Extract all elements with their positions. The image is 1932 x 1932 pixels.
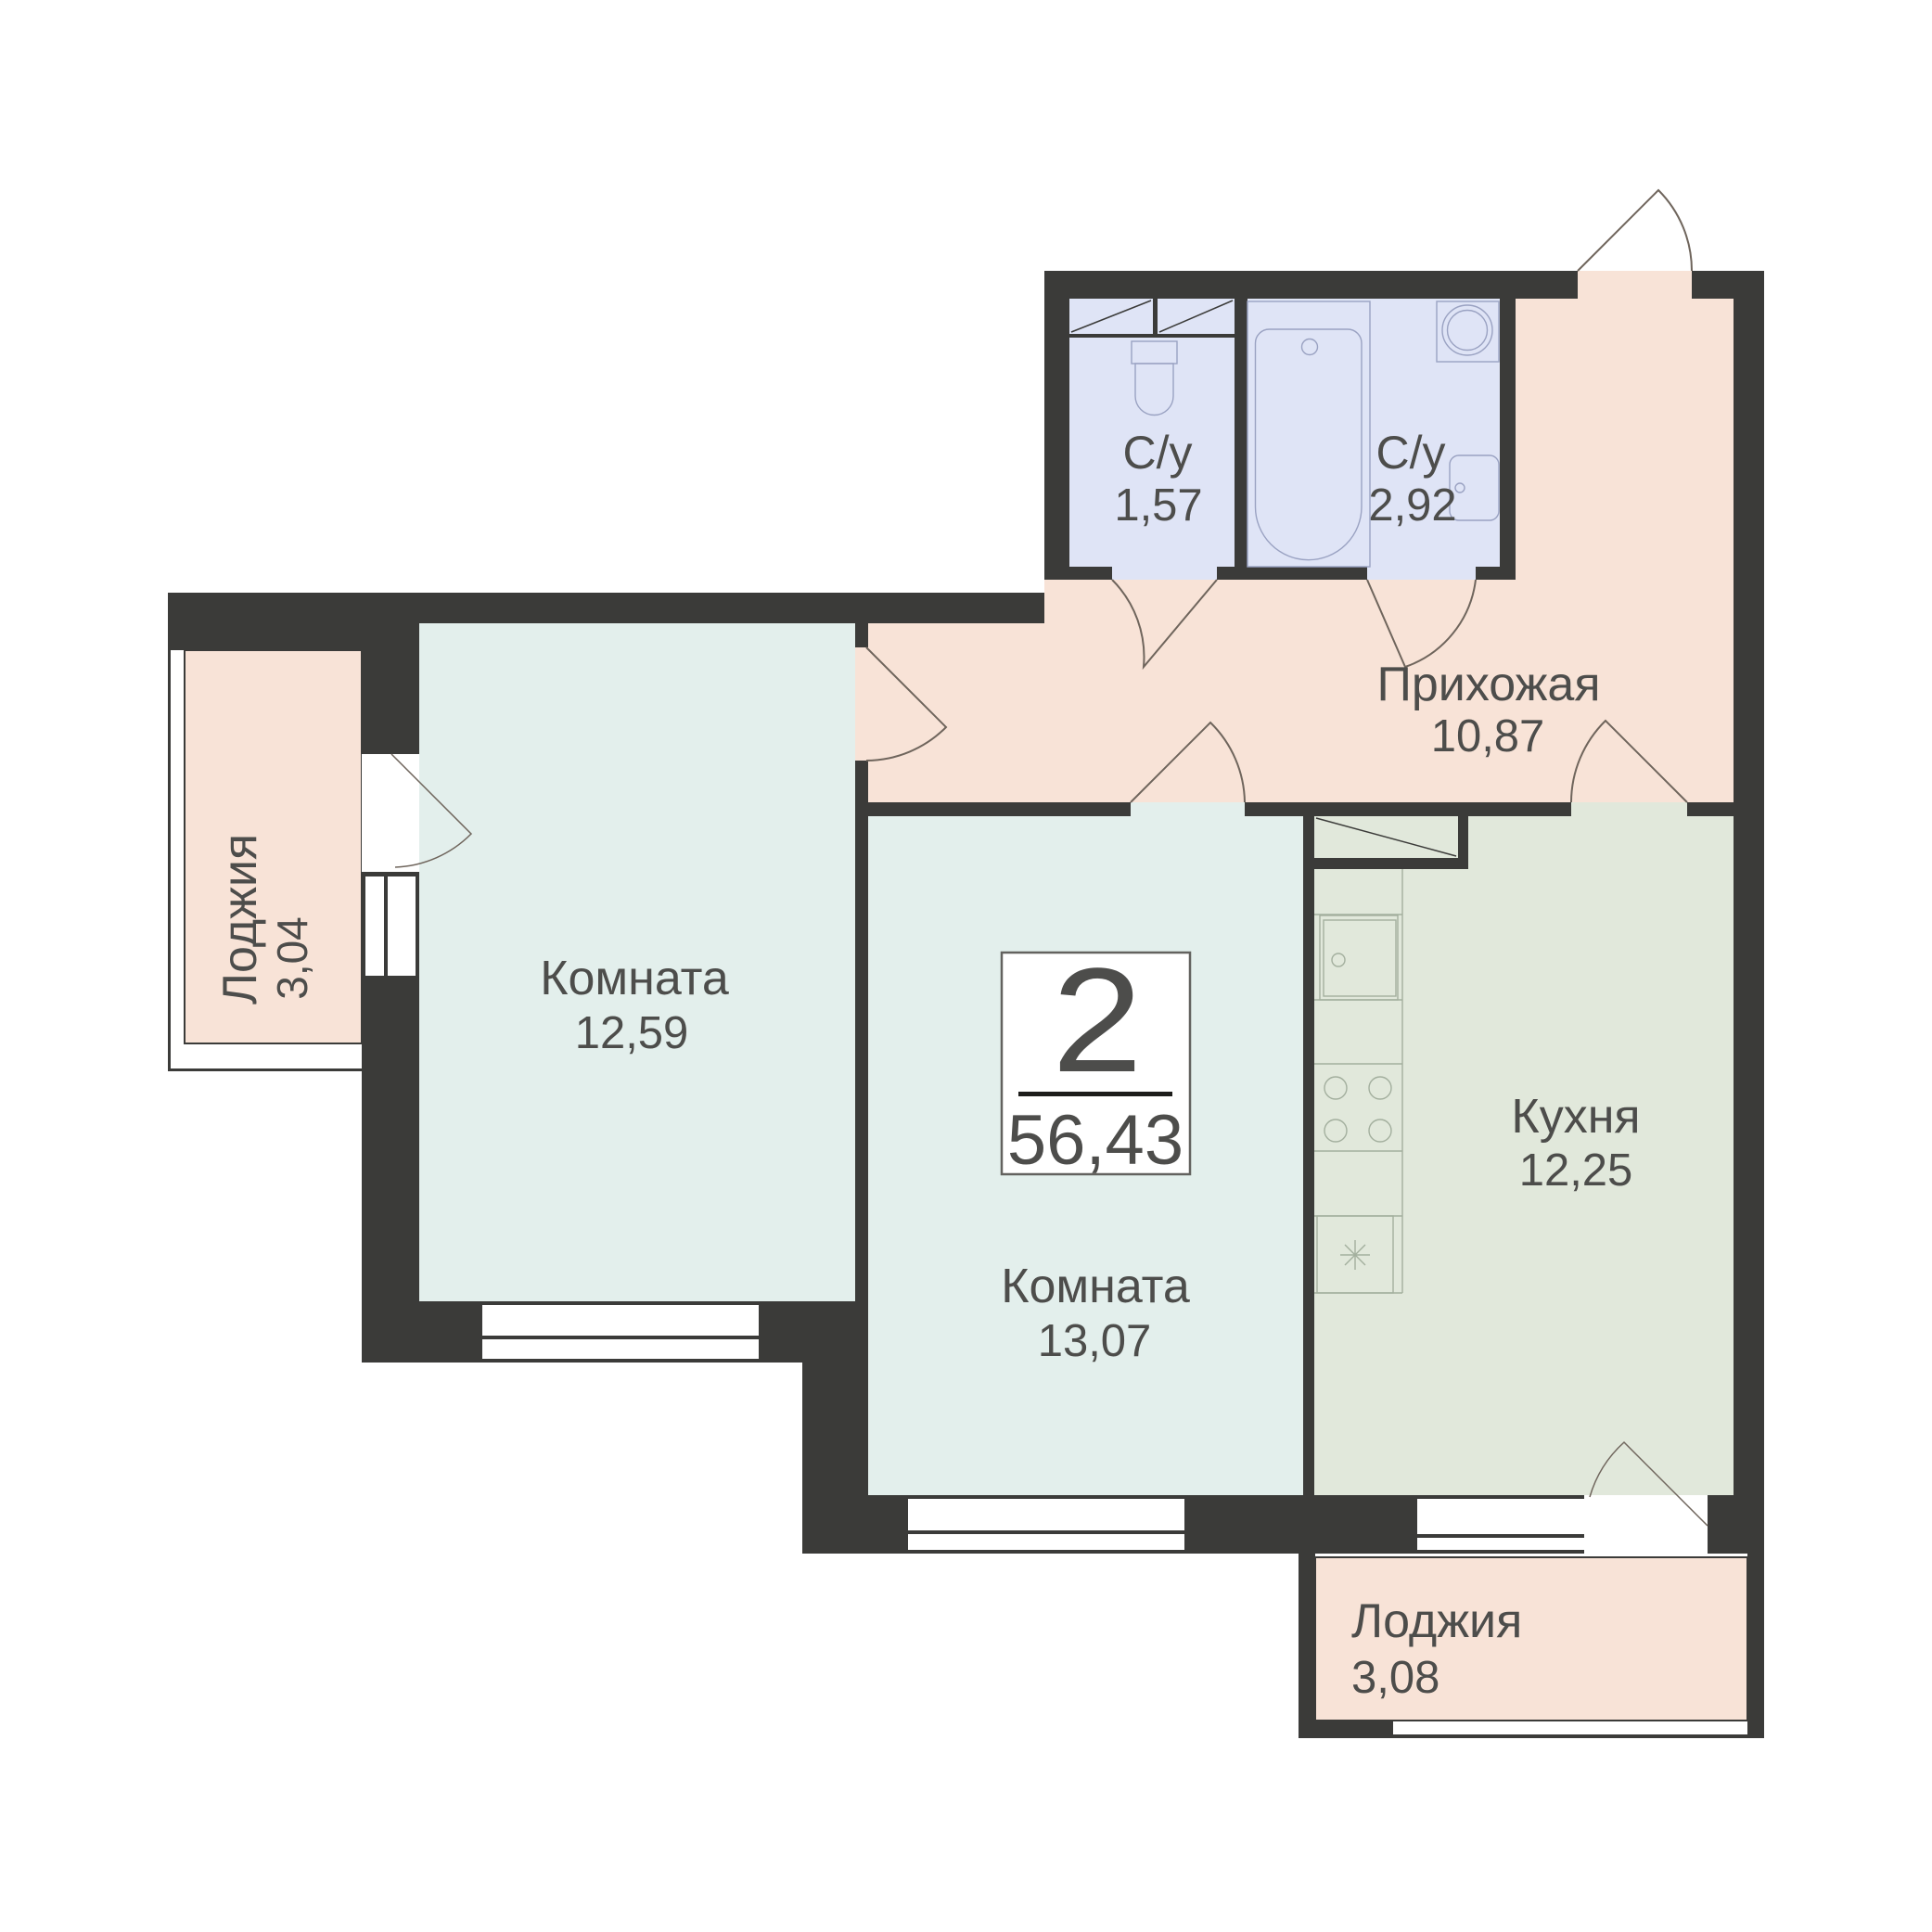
svg-text:3,04: 3,04 (268, 916, 316, 1000)
svg-text:12,59: 12,59 (575, 1008, 689, 1058)
svg-text:Комната: Комната (1001, 1260, 1190, 1313)
svg-text:2,92: 2,92 (1368, 480, 1456, 531)
svg-text:3,08: 3,08 (1351, 1653, 1439, 1703)
svg-text:Прихожая: Прихожая (1377, 658, 1601, 711)
svg-text:Лоджия: Лоджия (1351, 1594, 1522, 1648)
svg-text:С/у: С/у (1123, 427, 1193, 479)
svg-text:Кухня: Кухня (1511, 1090, 1640, 1144)
svg-text:Комната: Комната (540, 952, 729, 1005)
svg-text:2: 2 (1052, 937, 1143, 1103)
svg-text:С/у: С/у (1376, 427, 1446, 479)
svg-text:10,87: 10,87 (1431, 711, 1545, 761)
svg-text:1,57: 1,57 (1114, 480, 1202, 531)
svg-text:13,07: 13,07 (1038, 1316, 1152, 1366)
svg-text:12,25: 12,25 (1519, 1145, 1633, 1196)
svg-text:56,43: 56,43 (1007, 1101, 1184, 1180)
svg-text:Лоджия: Лоджия (213, 834, 267, 1004)
